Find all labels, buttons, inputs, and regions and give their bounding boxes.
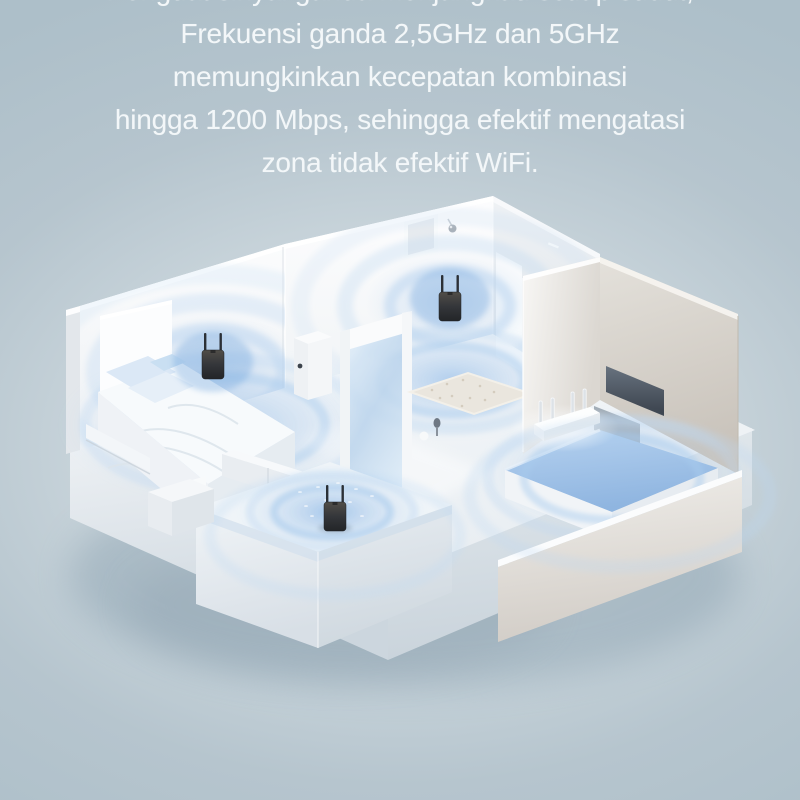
- headline-line-4: zona tidak efektif WiFi.: [0, 141, 800, 184]
- headline-line-3: hingga 1200 Mbps, sehingga efektif menga…: [0, 98, 800, 141]
- headline-line-clipped: Penguat sinyal ganda menjangkau setiap s…: [0, 0, 800, 12]
- promo-image: Penguat sinyal ganda menjangkau setiap s…: [0, 0, 800, 800]
- headline-line-2: memungkinkan kecepatan kombinasi: [0, 55, 800, 98]
- wifi-extender-bedroom: [173, 332, 253, 392]
- cabinet-handle: [298, 364, 303, 369]
- headline-line-1: Frekuensi ganda 2,5GHz dan 5GHz: [0, 12, 800, 55]
- wifi-extender-living: [410, 268, 490, 328]
- cabinet: [294, 331, 332, 400]
- headline-text: Penguat sinyal ganda menjangkau setiap s…: [0, 0, 800, 184]
- vase: [420, 432, 429, 441]
